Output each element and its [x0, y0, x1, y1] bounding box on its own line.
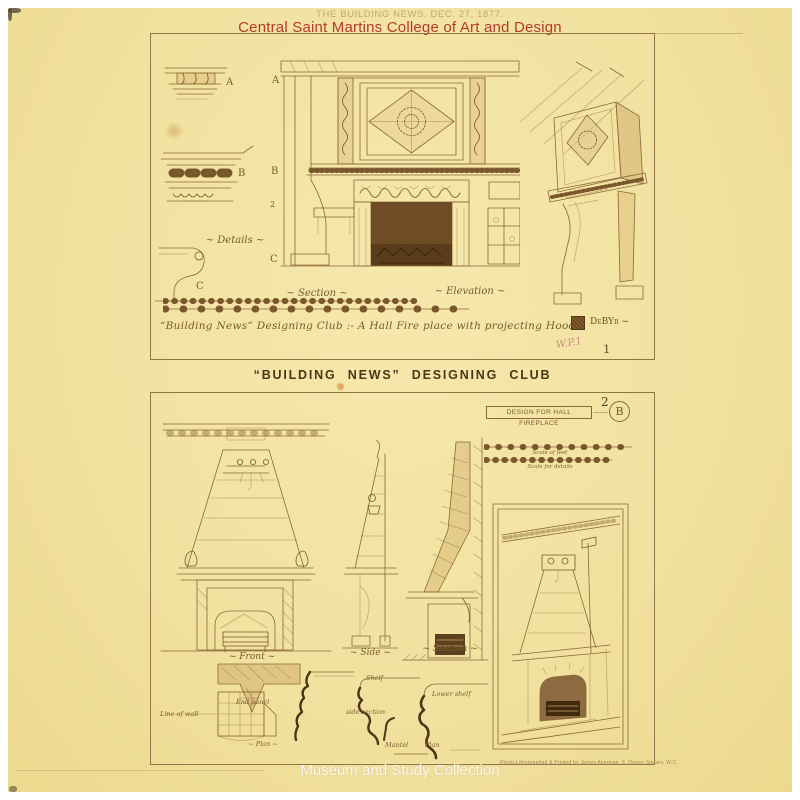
printer-credit-line: Photo-Lithographed & Printed by James Ak…: [500, 760, 760, 766]
hood-perspective-drawing: [518, 60, 653, 310]
section-mark-b: B: [271, 166, 278, 177]
section-label: ~ Section ~: [420, 644, 480, 654]
series-title: “BUILDING NEWS” DESIGNING CLUB: [150, 360, 655, 382]
interior-perspective-drawing: [492, 503, 629, 750]
title-connector-line: [593, 412, 608, 413]
plate2-title-box: DESIGN FOR HALL FIREPLACE: [486, 406, 592, 419]
page-edge-line: [655, 33, 743, 34]
detail-mark-a: A: [226, 77, 233, 88]
detail-mark-b: B: [238, 168, 245, 179]
artist-monogram-stamp: [571, 316, 585, 330]
plate1-number: 1: [603, 342, 610, 356]
plate1-caption: “Building News” Designing Club :- A Hall…: [160, 320, 576, 332]
cornice-details-drawing: [153, 58, 278, 303]
mantel-label: Mantel: [385, 741, 408, 749]
divider-band: “BUILDING NEWS” DESIGNING CLUB: [150, 360, 655, 392]
scan-edge-mark: [8, 8, 12, 21]
scale-caption: Scale for details: [500, 464, 600, 470]
plate2-number: 2: [601, 395, 609, 409]
scanned-plate-image: THE BUILDING NEWS. DEC. 27. 1877. Centra…: [0, 0, 800, 800]
page-edge-line: [15, 770, 265, 771]
side-label: ~ Side ~: [348, 648, 393, 658]
design-badge: B: [609, 401, 630, 422]
details-label: ~ Details ~: [190, 235, 280, 246]
side-section-label: side section: [346, 708, 385, 716]
monogram-motto: DeBYr ~: [590, 317, 629, 327]
plan2-label: Plan: [425, 741, 440, 749]
section-mark-2: 2: [270, 200, 275, 209]
scale-bar: [163, 296, 473, 314]
hall-fireplace-section-drawing: [402, 434, 490, 664]
lower-shelf-label: Lower shelf: [432, 690, 471, 698]
line-of-wall-label: Line of wall: [160, 710, 198, 718]
section-mark-c: C: [270, 254, 278, 265]
plan-label: ~ Plan ~: [243, 740, 283, 748]
scan-edge-mark: [9, 786, 17, 792]
section-mark-a: A: [272, 75, 279, 86]
scale-caption: Scale of feet: [505, 450, 595, 456]
detail-mark-c: C: [196, 281, 204, 292]
end-panel-label: End panel: [236, 698, 269, 706]
fireplace-elevation-drawing: [280, 58, 520, 293]
moulding-details-drawing: [158, 658, 490, 760]
shelf-label: Shelf: [366, 674, 383, 682]
hall-fireplace-side-drawing: [342, 436, 400, 654]
hall-fireplace-front-drawing: [157, 418, 335, 656]
